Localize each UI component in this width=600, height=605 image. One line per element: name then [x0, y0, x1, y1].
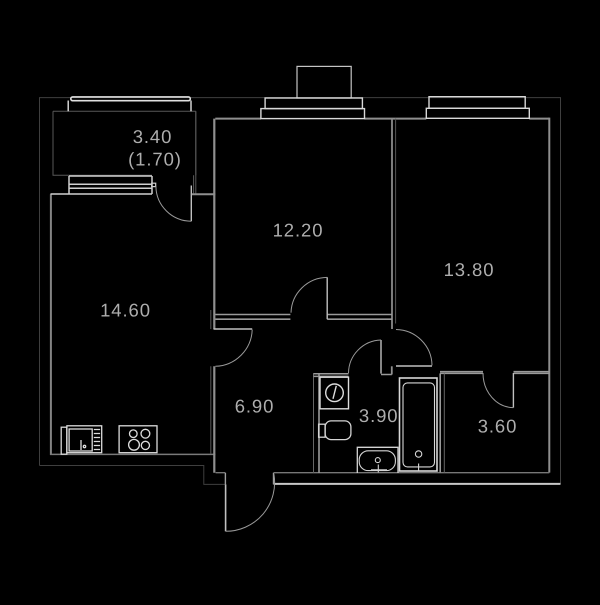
svg-text:14.60: 14.60 — [100, 299, 151, 320]
svg-text:3.90: 3.90 — [359, 405, 399, 426]
svg-text:3.40: 3.40 — [133, 126, 173, 147]
svg-text:(1.70): (1.70) — [128, 148, 182, 169]
svg-text:13.80: 13.80 — [444, 259, 495, 280]
svg-text:12.20: 12.20 — [273, 219, 324, 240]
svg-text:3.60: 3.60 — [478, 415, 518, 436]
svg-text:6.90: 6.90 — [235, 395, 275, 416]
